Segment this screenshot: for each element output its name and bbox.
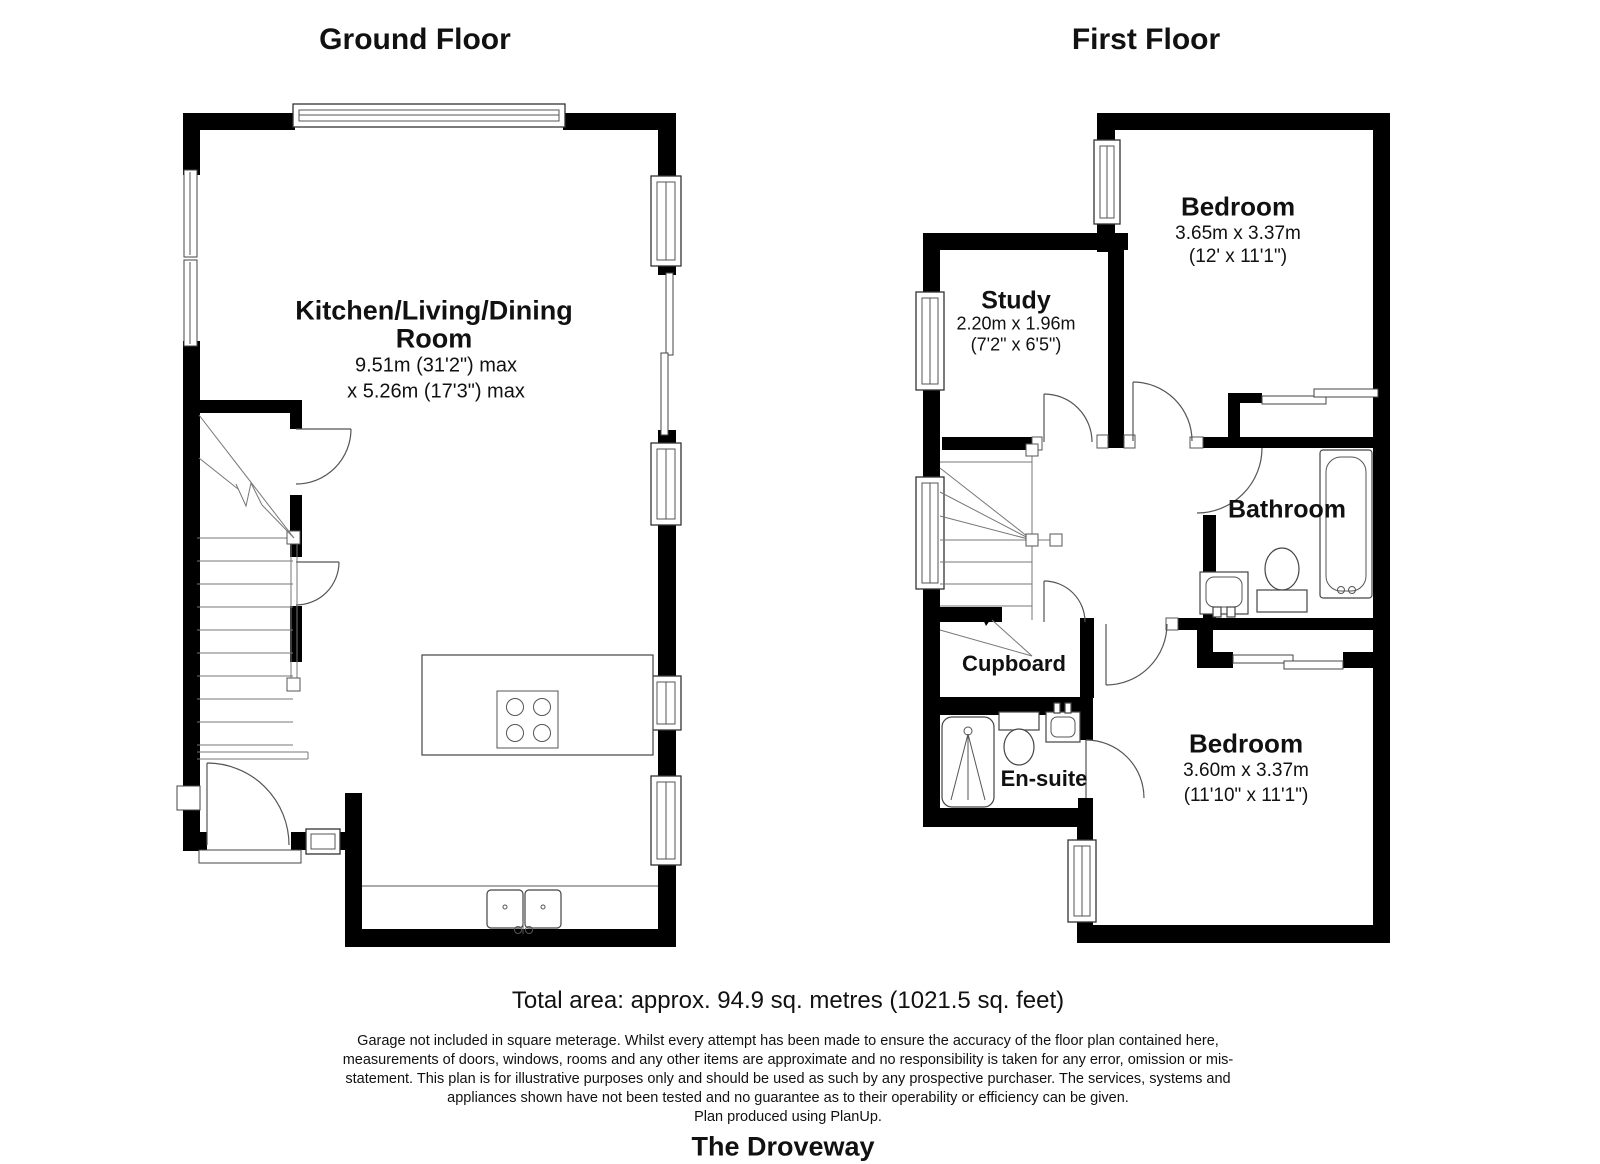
window	[651, 776, 681, 865]
door-swing	[1044, 581, 1085, 622]
window	[306, 829, 340, 854]
bathroom-fixtures	[1200, 450, 1372, 617]
disclaimer-line: appliances shown have not been tested an…	[447, 1090, 1129, 1106]
room-label-kitchen-living-dining: Kitchen/Living/Dining	[295, 296, 573, 327]
room-label-study: Study	[981, 287, 1050, 316]
room-label-bathroom: Bathroom	[1228, 496, 1346, 525]
ground-floor-plan	[177, 104, 681, 947]
floorplan-page: Ground Floor First Floor Kitchen/Living/…	[0, 0, 1600, 1164]
study-dim-imperial: (7'2" x 6'5")	[971, 335, 1062, 356]
kitchen-sink	[487, 890, 561, 934]
window	[916, 477, 944, 589]
window	[1094, 140, 1120, 224]
first-floor-plan	[916, 113, 1390, 943]
door-swing	[1044, 394, 1092, 442]
kitchen-island	[422, 655, 653, 755]
room-label-bedroom1: Bedroom	[1181, 192, 1295, 223]
room-label-ensuite: En-suite	[1001, 766, 1088, 792]
window	[293, 104, 565, 127]
ff-staircase	[940, 444, 1062, 656]
room-label-bedroom2: Bedroom	[1189, 729, 1303, 760]
window	[651, 176, 681, 266]
room-label-kitchen-living-dining-line2: Room	[396, 324, 473, 355]
bedroom2-dim-metric: 3.60m x 3.37m	[1183, 760, 1309, 782]
window	[1068, 840, 1096, 922]
bedroom2-dim-imperial: (11'10" x 11'1")	[1184, 785, 1309, 807]
total-area-text: Total area: approx. 94.9 sq. metres (102…	[512, 987, 1064, 1015]
toilet	[999, 712, 1039, 765]
window	[916, 292, 944, 390]
window	[184, 170, 197, 257]
door-swing	[296, 562, 339, 605]
bedroom1-dim-imperial: (12' x 11'1")	[1189, 246, 1287, 268]
ground-floor-title: Ground Floor	[319, 23, 511, 57]
door-swing	[1086, 740, 1144, 798]
newel-post	[1026, 534, 1038, 546]
window	[184, 260, 197, 346]
window	[651, 676, 681, 730]
meter-box	[177, 786, 200, 810]
first-floor-title: First Floor	[1072, 23, 1220, 57]
study-dim-metric: 2.20m x 1.96m	[956, 314, 1075, 335]
gf-staircase	[197, 415, 308, 759]
room-label-cupboard: Cupboard	[962, 651, 1066, 677]
window	[651, 443, 681, 525]
gf-walls	[183, 113, 676, 947]
door-swing	[1106, 624, 1167, 685]
newel-post	[287, 678, 300, 691]
newel-post	[1050, 534, 1062, 546]
disclaimer-line: measurements of doors, windows, rooms an…	[343, 1052, 1234, 1068]
room-dim-metric: 9.51m (31'2") max	[355, 355, 517, 378]
basin	[1200, 572, 1248, 617]
bedroom1-dim-metric: 3.65m x 3.37m	[1175, 223, 1301, 245]
entrance-step	[199, 850, 301, 863]
gf-doors	[199, 429, 351, 863]
produced-by-text: Plan produced using PlanUp.	[694, 1109, 882, 1125]
shower	[942, 717, 994, 807]
entrance-door	[207, 763, 289, 845]
property-name: The Droveway	[691, 1132, 874, 1163]
disclaimer-line: Garage not included in square meterage. …	[357, 1033, 1219, 1049]
door-swing	[1133, 382, 1192, 441]
room-dim-imperial: x 5.26m (17'3") max	[347, 381, 525, 404]
patio-door	[661, 273, 673, 435]
disclaimer-line: statement. This plan is for illustrative…	[345, 1071, 1230, 1087]
door-swing	[296, 429, 351, 484]
toilet	[1257, 548, 1307, 612]
